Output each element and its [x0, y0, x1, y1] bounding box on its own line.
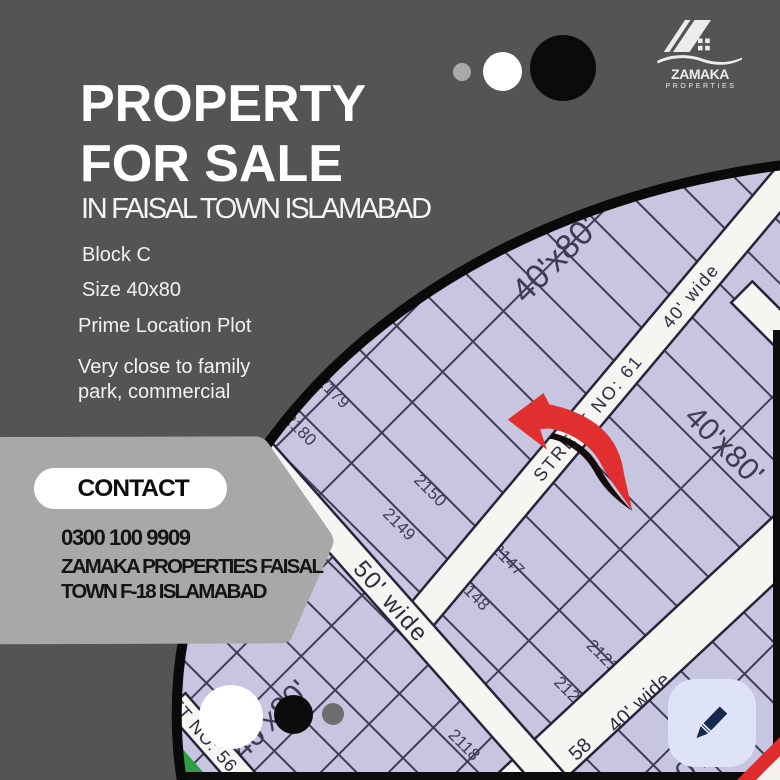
svg-text:ZAMAKA: ZAMAKA [671, 66, 729, 82]
svg-text:PROPERTIES: PROPERTIES [666, 83, 737, 90]
